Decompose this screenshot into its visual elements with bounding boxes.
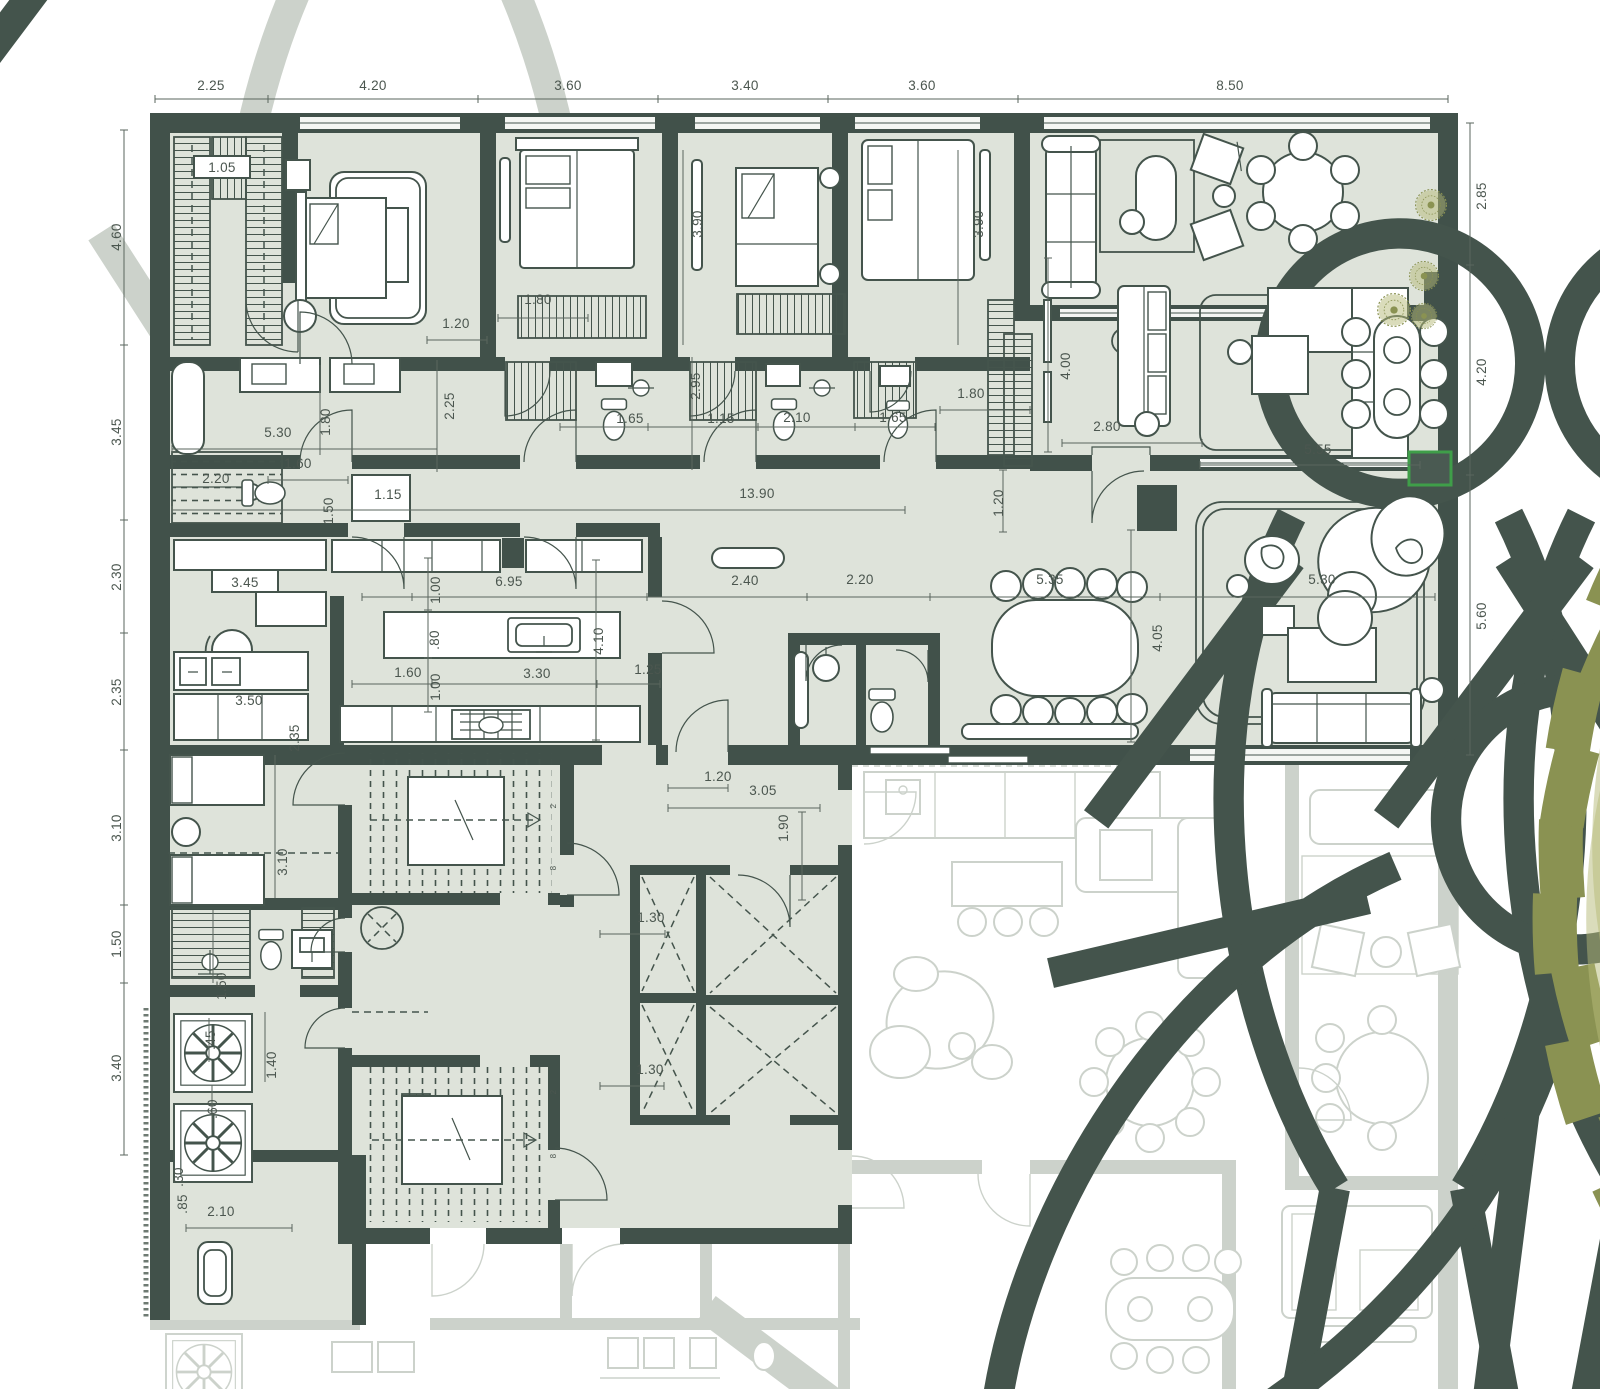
dimension-label: 2: [549, 803, 558, 808]
dimension-label: 1.30: [637, 910, 664, 925]
dimension-label: 13.90: [739, 486, 774, 501]
dimension-label: .60: [205, 1099, 220, 1119]
dimension-label: 2.40: [731, 573, 758, 588]
dimension-label: 2.80: [1093, 419, 1120, 434]
floor-plan-drawing: 2.254.203.603.403.608.504.603.452.302.35…: [0, 0, 1600, 1389]
dimension-label: 1.30: [636, 1062, 663, 1077]
foyer-bench: [712, 548, 784, 568]
dimension-label: 1.80: [318, 408, 333, 435]
dimension-label: 3.30: [523, 666, 550, 681]
dimension-label: 1.00: [428, 576, 443, 603]
dimension-label: 1.00: [428, 673, 443, 700]
dimension-label: 3.90: [971, 210, 986, 237]
dimension-label: .80: [427, 630, 442, 650]
dimension-label: 2.35: [287, 724, 302, 751]
dimension-label: 1.65: [879, 410, 906, 425]
dimension-label: 1.50: [214, 972, 229, 999]
dimension-label: 1.15: [707, 411, 734, 426]
dimension-label: 2: [549, 1089, 558, 1094]
dimension-label: 1.40: [264, 1051, 279, 1078]
dimension-label: 5.30: [1308, 572, 1335, 587]
dimension-label: 3.90: [690, 210, 705, 237]
dimension-label: 4.05: [1150, 624, 1165, 651]
dimension-label: 2.25: [197, 78, 224, 93]
kitchen-island: [384, 612, 620, 658]
dimension-label: 6.95: [495, 574, 522, 589]
dimension-label: 2.10: [783, 410, 810, 425]
dimension-label: .45: [203, 1030, 218, 1050]
dimension-label: 5.55: [1304, 442, 1331, 457]
dimension-label: 2.25: [442, 392, 457, 419]
dimension-label: 1.20: [704, 769, 731, 784]
fireplace-accent: [1409, 452, 1451, 485]
dimension-label: 1.80: [957, 386, 984, 401]
dimension-label: 1.25: [634, 662, 661, 677]
dimension-label: 2.30: [109, 563, 124, 590]
dimension-label: 8: [549, 1153, 558, 1158]
dimension-label: 1.05: [208, 160, 235, 175]
dimension-label: 2.85: [1474, 182, 1489, 209]
dimension-label: 1.90: [776, 814, 791, 841]
dimension-label: 3.60: [908, 78, 935, 93]
dimension-label: 4.10: [591, 627, 606, 654]
dimension-label: 3.45: [109, 418, 124, 445]
dimension-label: 1.15: [374, 487, 401, 502]
dimension-label: 2.10: [207, 1204, 234, 1219]
exhaust-fan-icon: [174, 1014, 252, 1092]
floor-plan-page: 2.254.203.603.403.608.504.603.452.302.35…: [0, 0, 1600, 1389]
dimension-label: 4.60: [109, 223, 124, 250]
dimension-label: 3.10: [275, 848, 290, 875]
dimension-label: 3.40: [731, 78, 758, 93]
dimension-label: 2.20: [846, 572, 873, 587]
dimension-label: 3.40: [109, 1054, 124, 1081]
dimension-label: 1.20: [442, 316, 469, 331]
dimension-label: 8: [549, 865, 558, 870]
dimension-label: 1.80: [524, 292, 551, 307]
dimension-label: 4.20: [359, 78, 386, 93]
dimension-label: 5.35: [1036, 572, 1063, 587]
dimension-label: 1.65: [616, 411, 643, 426]
dimension-label: 5.60: [1474, 602, 1489, 629]
dimension-label: 1.50: [109, 930, 124, 957]
dimension-label: 3.05: [749, 783, 776, 798]
dimension-label: 1.50: [321, 497, 336, 524]
dimension-label: 2.95: [688, 372, 703, 399]
dimension-label: 4.00: [1058, 352, 1073, 379]
dimension-label: .30: [171, 1167, 186, 1187]
dimension-label: 8.50: [1216, 78, 1243, 93]
dimension-label: 5.30: [264, 425, 291, 440]
dimension-label: 2.35: [109, 678, 124, 705]
dimension-label: 3.10: [109, 814, 124, 841]
dimension-label: 2.20: [202, 471, 229, 486]
dimension-label: 3.50: [235, 693, 262, 708]
dimension-label: 1.60: [394, 665, 421, 680]
dimension-label: 1.60: [284, 456, 311, 471]
dimension-label: 3.60: [554, 78, 581, 93]
dimension-label: 3.45: [231, 575, 258, 590]
dimension-label: .85: [175, 1194, 190, 1214]
dimension-label: 4.20: [1474, 358, 1489, 385]
dimension-label: 1.20: [991, 489, 1006, 516]
master-bedroom: [284, 160, 426, 332]
